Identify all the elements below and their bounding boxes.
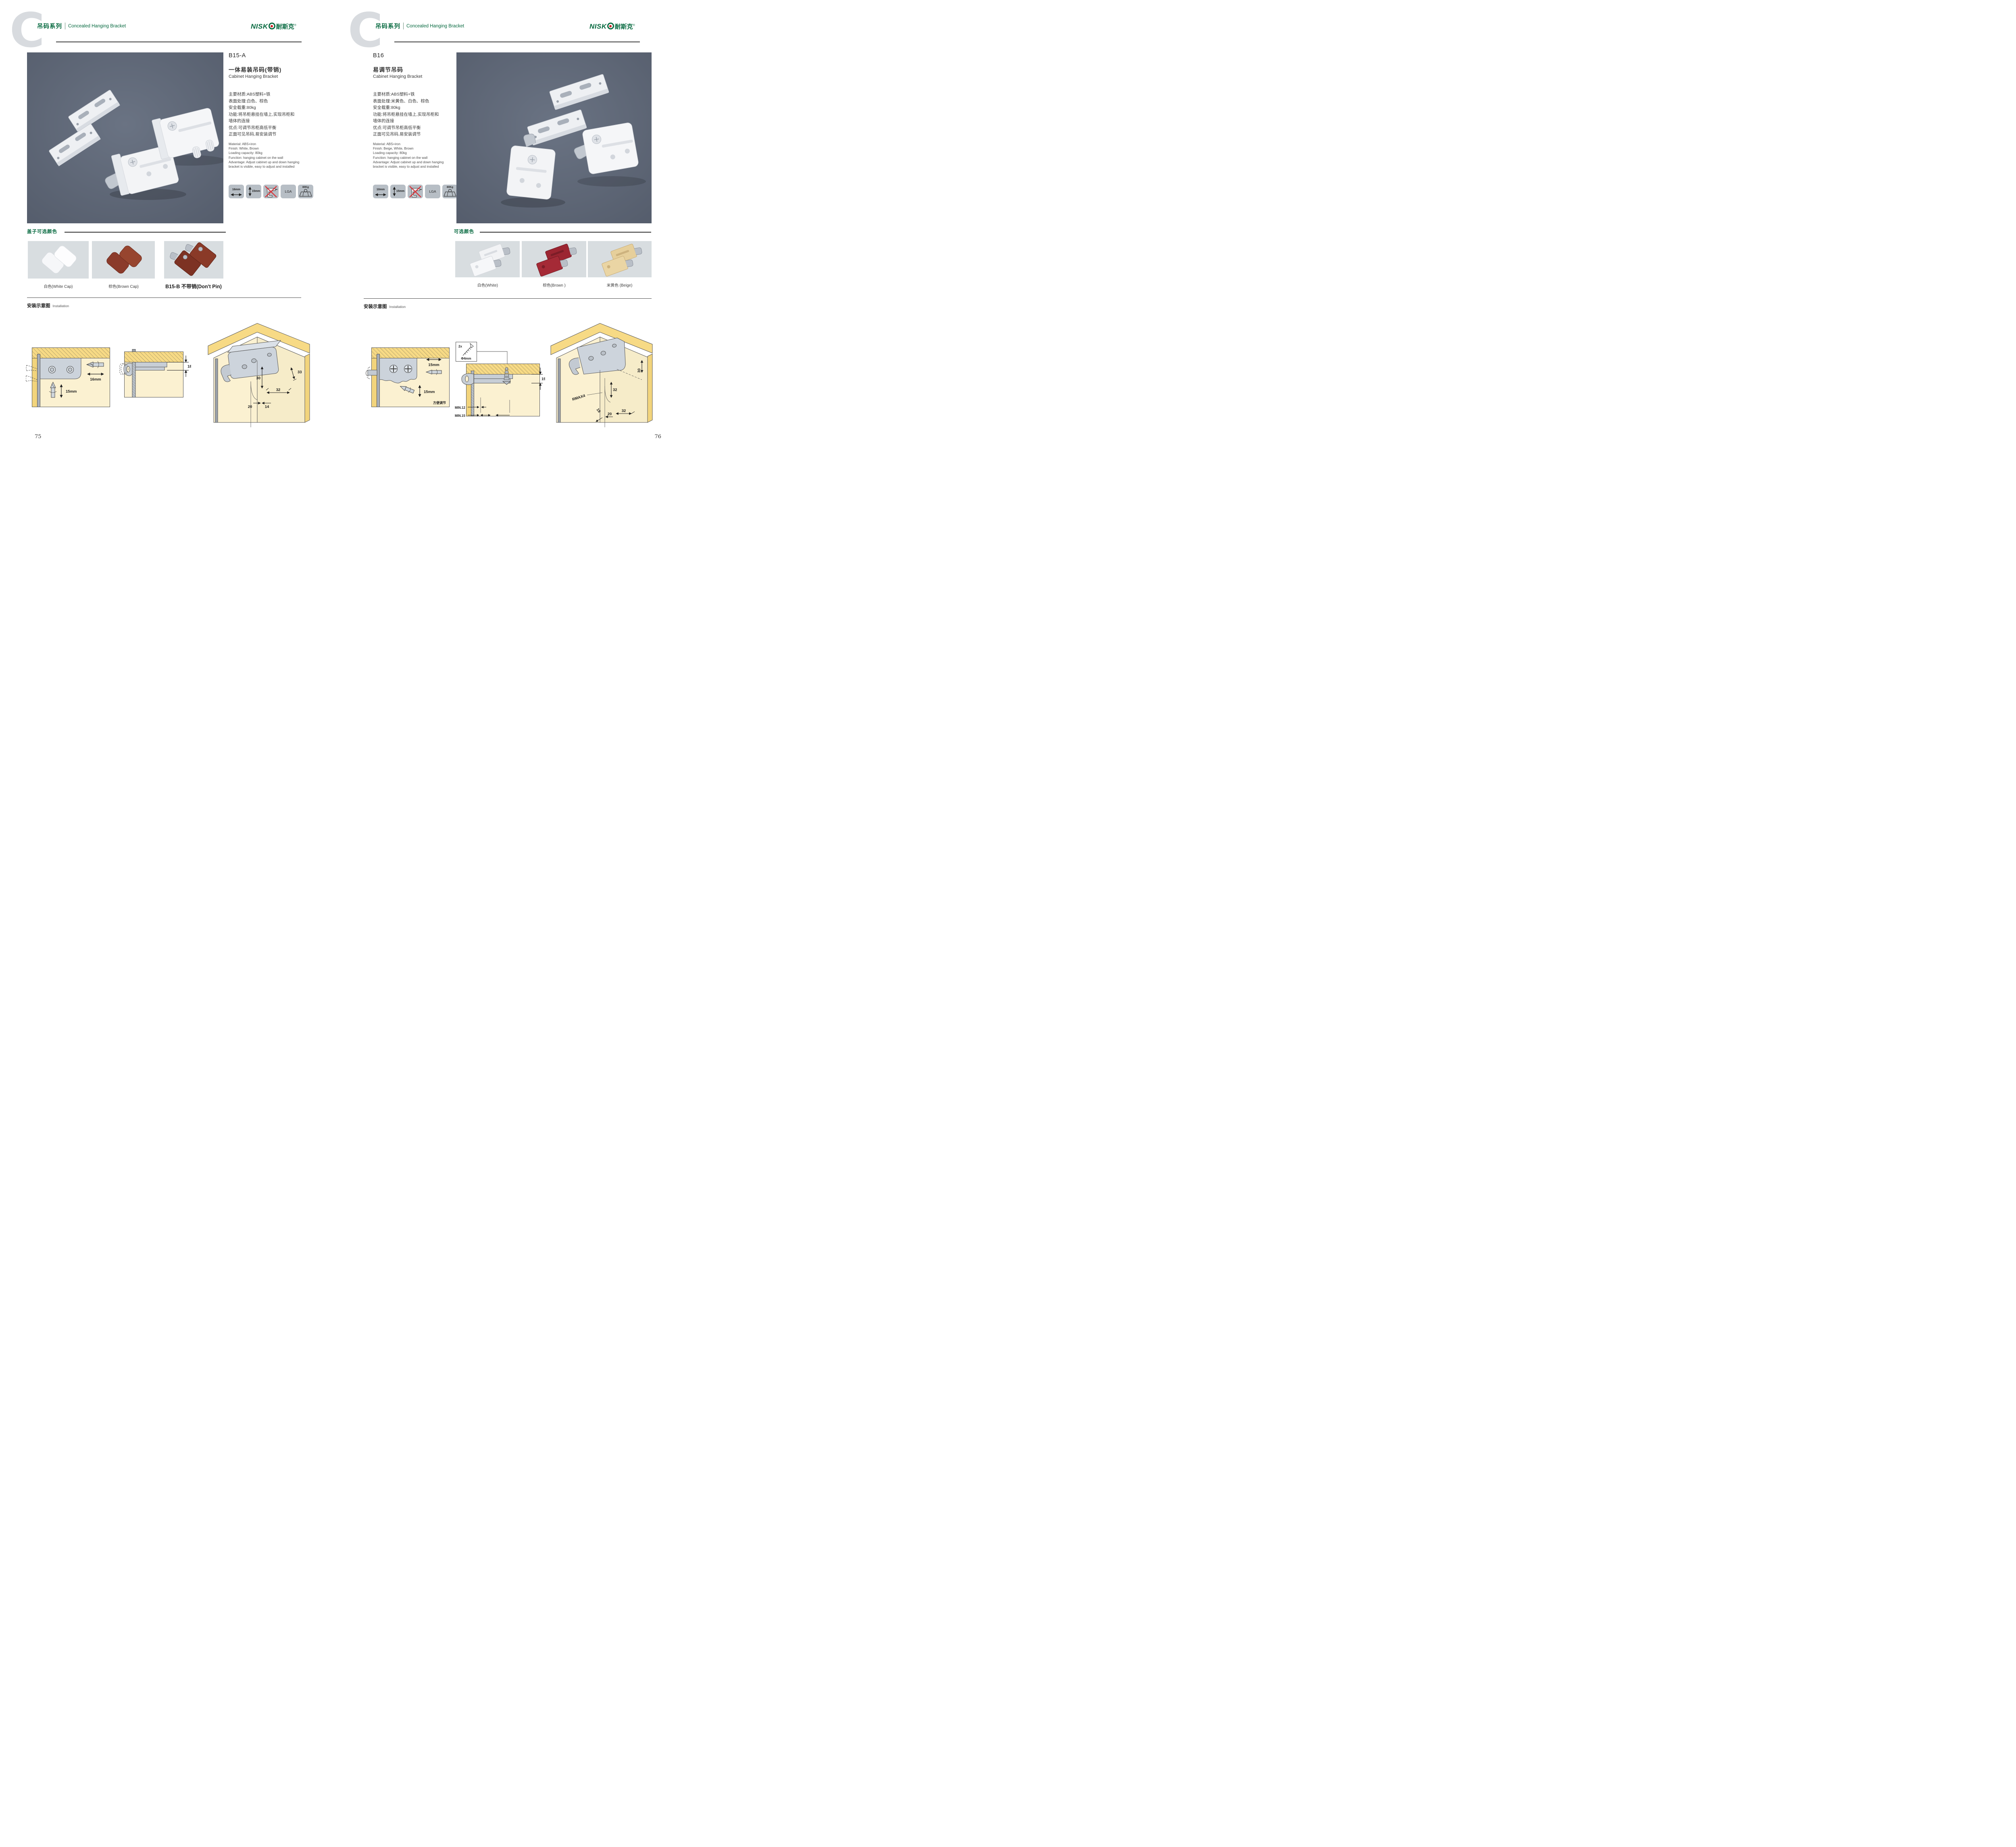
spec-line: 安全载重:80kg: [373, 104, 439, 111]
colors-section-title: 盖子可选颜色: [27, 228, 57, 235]
min15-label: MIN.15: [455, 414, 465, 418]
product-photo-b15a: [27, 52, 223, 223]
brown-bracket-image: [522, 241, 586, 277]
series-title-cn: 吊码系列: [375, 22, 400, 30]
spec-line: 主要材质:ABS塑料+铁: [229, 91, 294, 98]
b15b-image: [164, 241, 223, 279]
specs-en: Material: ABS+iron Finish: White, Brown …: [229, 142, 299, 169]
product-model: B15-A: [229, 52, 246, 59]
install-title-en: Installation: [389, 305, 406, 309]
dim-32: 32: [276, 388, 281, 392]
swatch-white-cap: [28, 241, 89, 279]
weight-icon: [442, 185, 458, 198]
screw-qty: 2x: [458, 345, 462, 348]
dim-19: 19: [541, 377, 545, 381]
spec-line-en: Material: ABS+iron: [229, 142, 299, 146]
spec-line: 功能:将吊柜悬挂在墙上,实现吊柜和: [229, 111, 294, 118]
icon-tile-height: 15mm: [246, 185, 261, 198]
min12-label: MIN.12: [455, 406, 465, 410]
header-rule: [394, 42, 640, 42]
height-value: 15mm: [248, 190, 264, 193]
icon-tile-load: 80Kg: [298, 185, 313, 198]
screw-spec-box: 2x Φ4mm: [456, 342, 477, 362]
watermark-letter-left: C: [10, 6, 45, 54]
spec-line-en: Material: ABS+iron: [373, 142, 444, 146]
icon-tile-width: 16mm: [229, 185, 244, 198]
section-rule: [480, 232, 651, 233]
specs-cn: 主要材质:ABS塑料+铁 表面处理:米黄色、白色、棕色 安全载重:80kg 功能…: [373, 91, 439, 138]
cert-label: LGA: [425, 189, 440, 193]
spec-line-en: bracket is visible, easy to adjust and i…: [373, 164, 444, 169]
dim-20: 20: [608, 412, 612, 416]
spec-line: 正面可见吊码,易安装调节: [229, 131, 294, 138]
icon-tile-no-drill: [408, 185, 423, 198]
install-title-cn: 安装示意图: [27, 302, 50, 309]
spec-line-en: Function: hanging cabinet on the wall: [373, 156, 444, 160]
colors-section-title: 可选颜色: [454, 228, 474, 235]
title-divider: [403, 23, 404, 29]
icon-tile-height: 15mm: [390, 185, 406, 198]
logo-ring-icon: [607, 23, 614, 29]
logo-ring-icon: [269, 23, 275, 29]
swatch-brown-cap: [92, 241, 155, 279]
swatch-caption-white: 白色(White): [459, 282, 516, 288]
spec-line: 墙体的连接: [373, 118, 439, 125]
spec-line: 主要材质:ABS塑料+铁: [373, 91, 439, 98]
screw-size: Φ4mm: [461, 357, 471, 360]
icon-tile-no-drill: [263, 185, 279, 198]
dim-width: 16mm: [90, 377, 101, 382]
title-divider: [65, 23, 65, 29]
series-title-en: Concealed Hanging Bracket: [68, 24, 126, 29]
icon-tile-width: 10mm: [373, 185, 388, 198]
install-diagram-1: 15mm 15mm 方便调节: [365, 345, 450, 410]
section-divider: [27, 297, 301, 298]
width-value: 10mm: [373, 188, 388, 191]
section-divider: [364, 298, 652, 299]
spec-line: 正面可见吊码,易安装调节: [373, 131, 439, 138]
install-title-en: Installation: [53, 304, 69, 308]
dim-30: 30: [256, 376, 260, 381]
dim-18: 18: [187, 364, 191, 369]
swatch-white: [455, 241, 520, 277]
swatch-caption-brown: 棕色(Brown ): [526, 282, 583, 288]
swatch-caption-b15b: B15-B 不带销(Don't Pin): [153, 282, 234, 290]
spec-line: 优点:可调节吊柜高低平衡: [373, 125, 439, 131]
series-title-en: Concealed Hanging Bracket: [406, 24, 464, 29]
spec-icon-row: 10mm 15mm LGA 80Kg: [373, 185, 458, 198]
specs-cn: 主要材质:ABS塑料+铁 表面处理:白色、棕色 安全载重:80kg 功能:将吊柜…: [229, 91, 294, 138]
dim-32h: 32: [622, 409, 626, 413]
header-rule: [56, 42, 302, 42]
swatch-caption-white: 白色(White Cap): [30, 283, 87, 289]
product-photo-b16: [456, 52, 652, 223]
swatch-b15b: [164, 241, 223, 279]
dim-33: 33: [298, 370, 302, 374]
white-bracket-image: [455, 241, 520, 277]
page-number-right: 76: [643, 434, 661, 440]
logo-dot-icon: [271, 25, 273, 27]
spec-line-en: Advantage: Adjust cabinet up and down ha…: [229, 160, 299, 164]
spec-line-en: Finish: White, Brown: [229, 146, 299, 151]
product-name-en: Cabinet Hanging Bracket: [373, 74, 422, 79]
note-easy-adjust: 方便调节: [433, 401, 446, 405]
install-title-cn: 安装示意图: [364, 303, 387, 310]
dim-30: 30: [637, 368, 641, 373]
wall-rail-edge: [558, 359, 560, 422]
spec-line-en: Loading capacity: 80kg: [373, 151, 444, 155]
weight-icon: [298, 185, 313, 198]
spec-line-en: bracket is visible, easy to adjust and i…: [229, 164, 299, 169]
spec-line-en: Function: hanging cabinet on the wall: [229, 156, 299, 160]
page-number-left: 75: [35, 434, 42, 440]
product-name-en: Cabinet Hanging Bracket: [229, 74, 278, 79]
product-name-cn: 一体易装吊码(带销): [229, 66, 281, 74]
icon-tile-load: 80Kg: [442, 185, 458, 198]
icon-tile-cert: LGA: [281, 185, 296, 198]
install-diagram-3: 30 33 32 20 14: [206, 322, 312, 433]
spec-line-en: Advantage: Adjust cabinet up and down ha…: [373, 160, 444, 164]
swatch-brown: [522, 241, 586, 277]
brand-logo: NISK耐斯克®: [251, 22, 296, 31]
swatch-caption-beige: 米黄色 (Beige): [591, 282, 648, 288]
white-cap-image: [28, 241, 89, 279]
dim-14: 14: [265, 405, 269, 409]
spec-line: 功能:将吊柜悬挂在墙上,实现吊柜和: [373, 111, 439, 118]
spec-icon-row: 16mm 15mm LGA 8: [229, 185, 313, 198]
install-diagram-2: 18: [119, 347, 191, 402]
dim-20: 20: [248, 405, 252, 409]
brand-name-cn: 耐斯克: [615, 23, 633, 30]
registered-mark: ®: [294, 24, 296, 27]
install-diagram-2: 2x Φ4mm 19 MIN.12: [455, 339, 545, 427]
spec-line-en: Finish: Beige, White, Brown: [373, 146, 444, 151]
spec-line: 安全载重:80kg: [229, 104, 294, 111]
brand-logo: NISK耐斯克®: [589, 22, 635, 31]
spec-line-en: Loading capacity: 80kg: [229, 151, 299, 155]
nisko-wordmark: NISK: [251, 23, 268, 30]
brand-name-cn: 耐斯克: [276, 23, 294, 30]
drill-icon: [263, 185, 279, 198]
width-value: 16mm: [229, 188, 244, 191]
width-arrow-icon: [229, 185, 244, 198]
beige-bracket-image: [588, 241, 652, 277]
nisko-wordmark: NISK: [589, 23, 607, 30]
specs-en: Material: ABS+iron Finish: Beige, White,…: [373, 142, 444, 169]
logo-dot-icon: [609, 25, 612, 27]
product-name-cn: 易调节吊码: [373, 66, 403, 74]
dim-height: 15mm: [66, 389, 77, 394]
drill-icon: [408, 185, 423, 198]
spec-line: 表面处理:米黄色、白色、棕色: [373, 98, 439, 105]
icon-tile-cert: LGA: [425, 185, 440, 198]
spec-line: 墙体的连接: [229, 118, 294, 125]
cert-label: LGA: [281, 189, 296, 193]
swatch-beige: [588, 241, 652, 277]
registered-mark: ®: [633, 24, 635, 27]
product-model: B16: [373, 52, 384, 59]
dim-v-adjust: 15mm: [424, 390, 435, 394]
watermark-letter-right: C: [348, 6, 383, 54]
spec-line: 表面处理:白色、棕色: [229, 98, 294, 105]
series-title-cn: 吊码系列: [37, 22, 62, 30]
catalog-spread: C 吊码系列 Concealed Hanging Bracket NISK耐斯克…: [0, 0, 677, 462]
swatch-caption-brown: 棕色(Brown Cap): [95, 283, 152, 289]
spec-line: 优点:可调节吊柜高低平衡: [229, 125, 294, 131]
height-value: 15mm: [393, 190, 408, 193]
install-diagram-1: 16mm 15mm: [26, 345, 110, 410]
dim-h-adjust: 15mm: [428, 363, 439, 367]
dim-32v: 32: [613, 388, 617, 392]
width-arrow-icon: [373, 185, 388, 198]
section-rule: [65, 232, 226, 233]
brown-cap-image: [92, 241, 155, 279]
install-diagram-3: 30 32 RMAX4 19 20 32: [548, 322, 655, 433]
wall-rail-edge: [215, 359, 218, 422]
